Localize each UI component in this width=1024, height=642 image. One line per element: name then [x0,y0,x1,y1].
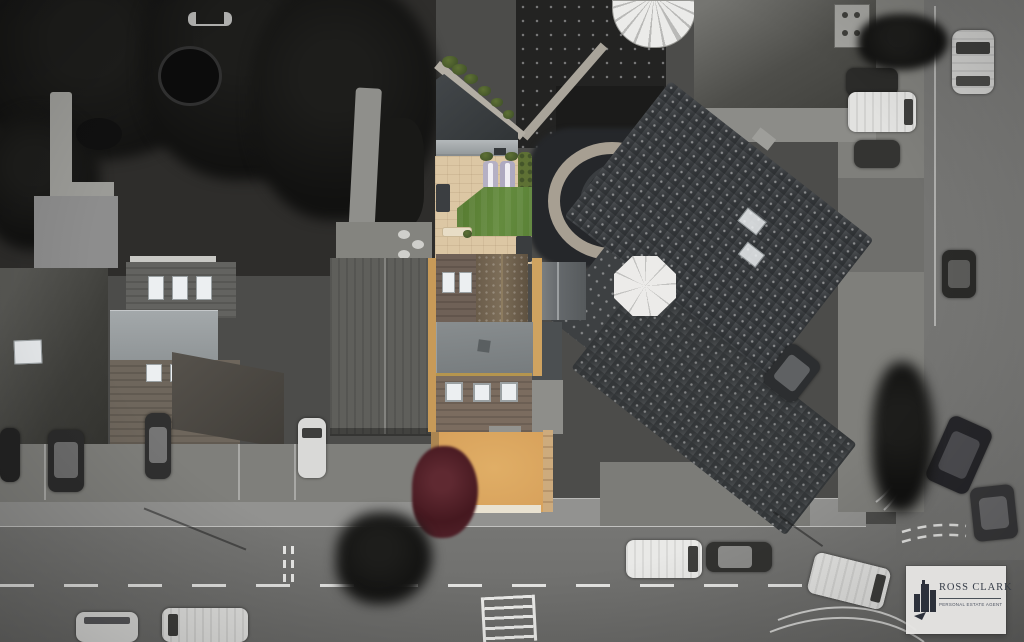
garden-pool [158,46,222,106]
parked-car-white [76,612,138,642]
agency-name: ROSS CLARK [939,582,1012,593]
car-roof [948,260,970,288]
windshield [168,614,178,636]
dormer-window [500,382,518,402]
aerial-photo: ROSS CLARK PERSONAL ESTATE AGENT [0,0,1024,642]
garden-pool [76,118,122,150]
ladder-marking [481,595,537,642]
silver-car [952,30,994,94]
give-way-dashes [902,535,966,542]
parked-white-van [848,92,916,132]
bicycle [188,12,232,26]
buildings-silhouette [914,580,936,620]
roof-vent [477,339,491,353]
chimney-pot [854,12,860,18]
car-roof [978,496,1009,531]
windshield [904,99,913,125]
agency-watermark: ROSS CLARK PERSONAL ESTATE AGENT [906,566,1006,634]
roof-skylight [738,242,765,268]
dark-car [969,484,1018,542]
drive-wall [44,444,46,500]
hedge [478,86,491,96]
hedge [464,74,478,84]
windshield [956,42,990,54]
roof-skylight [14,340,43,365]
windshield [84,617,130,624]
sun-lounger [483,161,498,190]
dark-car [942,250,976,298]
dormer-window [473,383,491,402]
car-roof [54,442,78,478]
patio-furniture [398,230,410,239]
white-van [626,540,702,578]
roof-ridge [384,258,386,434]
flat-roof [110,310,218,363]
chimney-pot [842,12,848,18]
outbuilding-door [494,148,506,155]
parked-car-dark [145,413,171,479]
agency-tagline: PERSONAL ESTATE AGENT [939,602,1002,607]
logo-divider [939,598,1001,599]
windshield [870,573,886,603]
roof-skylight [146,364,162,382]
roof-ridge [501,254,503,324]
give-way-marking [283,546,286,588]
car-roof [149,427,167,463]
dark-car [706,542,772,572]
roof-skylight [442,272,455,293]
patio-furniture [412,240,424,249]
car-roof [937,430,981,481]
lounger-cushion [505,163,510,188]
rear-window [956,76,990,86]
give-way-dashes [902,525,966,532]
garden-shed-roof [436,74,518,144]
chimney-pot [842,30,848,36]
give-way-marking [291,546,294,588]
left-patio [34,196,118,268]
parked-car-dark [0,428,20,482]
roof-skylight [196,276,212,300]
drive-wall [294,444,296,500]
hedge [503,110,514,119]
dormer-window [445,382,463,402]
parked-car-white [298,418,326,478]
hedge [452,64,467,75]
adjoining-house-roof [330,258,434,434]
parked-car-dark [48,430,84,492]
hedge [491,98,503,107]
garden-storage-box [436,184,450,212]
buildings-skyline-icon [912,578,938,622]
parked-car-dark [854,140,900,168]
parked-white-van [162,608,248,642]
roof-skylight [738,207,767,235]
car-roof [773,353,812,393]
roof-skylight [148,276,164,300]
car-roof [718,546,752,568]
windshield [302,428,322,438]
eaves-shadow [330,428,434,436]
roof-ridge [557,262,559,320]
side-path-right [532,258,542,376]
windshield [688,546,698,572]
drive-wall [238,444,240,500]
roof-skylight [459,272,472,293]
boundary-wall [543,430,553,512]
side-walkway [527,380,563,434]
sun-lounger [500,161,515,190]
centre-line-marking [0,584,846,587]
lounger-cushion [488,163,493,188]
roof-skylight [172,276,188,300]
